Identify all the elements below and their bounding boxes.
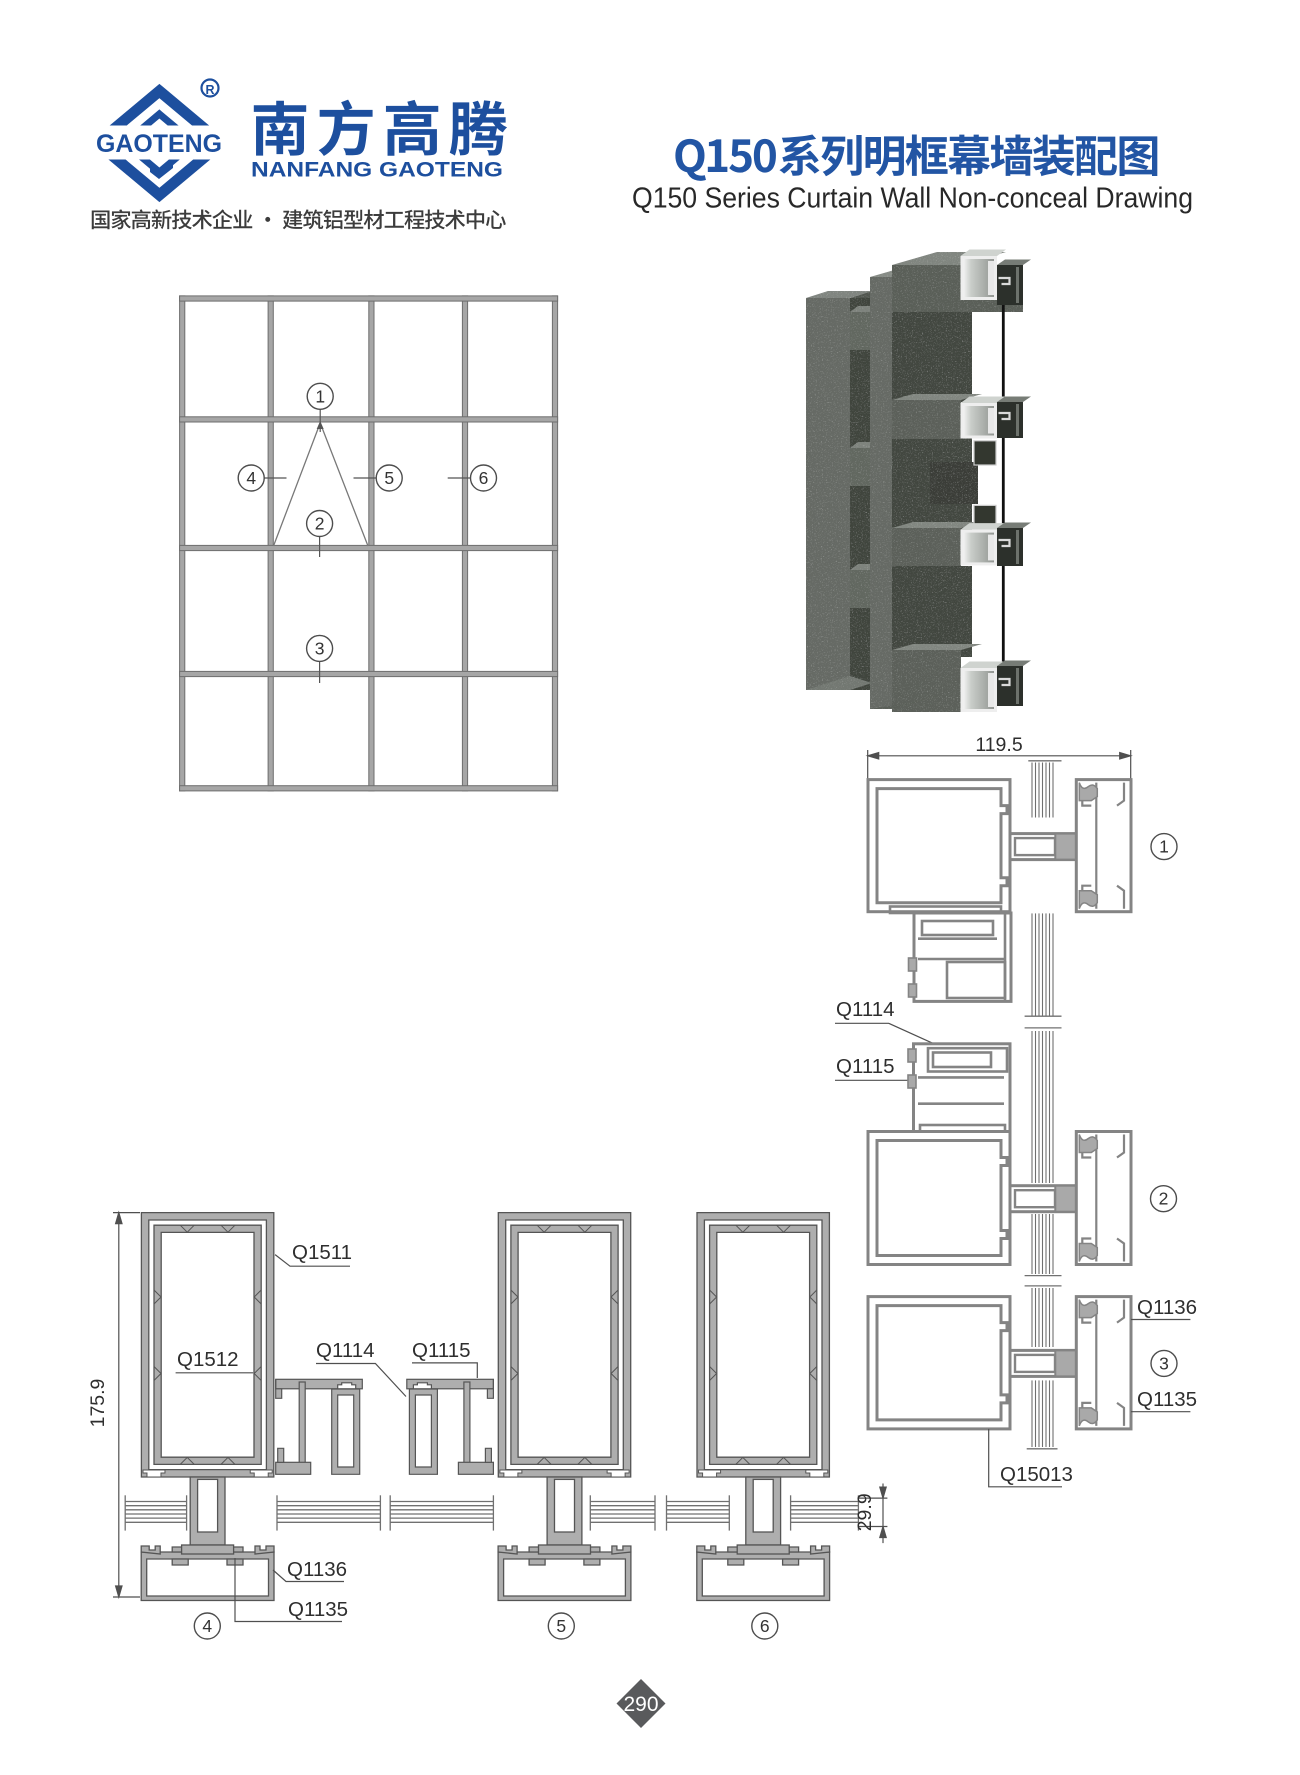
svg-text:Q1135: Q1135 [1137, 1388, 1197, 1411]
svg-text:2: 2 [1159, 1189, 1169, 1209]
svg-text:Q1511: Q1511 [292, 1241, 352, 1264]
svg-text:1: 1 [315, 386, 325, 406]
svg-text:Q1136: Q1136 [287, 1558, 347, 1581]
svg-text:6: 6 [760, 1616, 770, 1636]
svg-text:175.9: 175.9 [87, 1379, 109, 1428]
svg-text:119.5: 119.5 [975, 734, 1023, 756]
svg-text:NANFANG GAOTENG: NANFANG GAOTENG [251, 158, 503, 182]
svg-text:Q1114: Q1114 [316, 1339, 375, 1362]
svg-text:Q1115: Q1115 [412, 1339, 471, 1362]
svg-text:4: 4 [246, 468, 256, 488]
svg-text:3: 3 [1159, 1353, 1169, 1373]
svg-text:Q1512: Q1512 [177, 1348, 239, 1371]
svg-text:GAOTENG: GAOTENG [96, 130, 222, 158]
svg-text:5: 5 [384, 468, 394, 488]
svg-text:Q1115: Q1115 [836, 1055, 895, 1078]
svg-text:290: 290 [623, 1693, 658, 1716]
svg-text:6: 6 [479, 468, 489, 488]
svg-text:R: R [205, 83, 214, 97]
svg-text:Q1135: Q1135 [288, 1598, 348, 1621]
svg-text:Q15013: Q15013 [1000, 1463, 1073, 1486]
svg-text:Q150 Series Curtain Wall Non-c: Q150 Series Curtain Wall Non-conceal Dra… [632, 183, 1193, 215]
svg-text:2: 2 [315, 514, 325, 534]
svg-text:Q1114: Q1114 [836, 998, 895, 1021]
svg-text:5: 5 [556, 1616, 566, 1636]
svg-text:29.9: 29.9 [854, 1493, 876, 1531]
svg-text:Q1136: Q1136 [1137, 1296, 1197, 1319]
svg-text:3: 3 [315, 638, 325, 658]
svg-text:4: 4 [202, 1616, 212, 1636]
svg-text:1: 1 [1159, 837, 1169, 857]
